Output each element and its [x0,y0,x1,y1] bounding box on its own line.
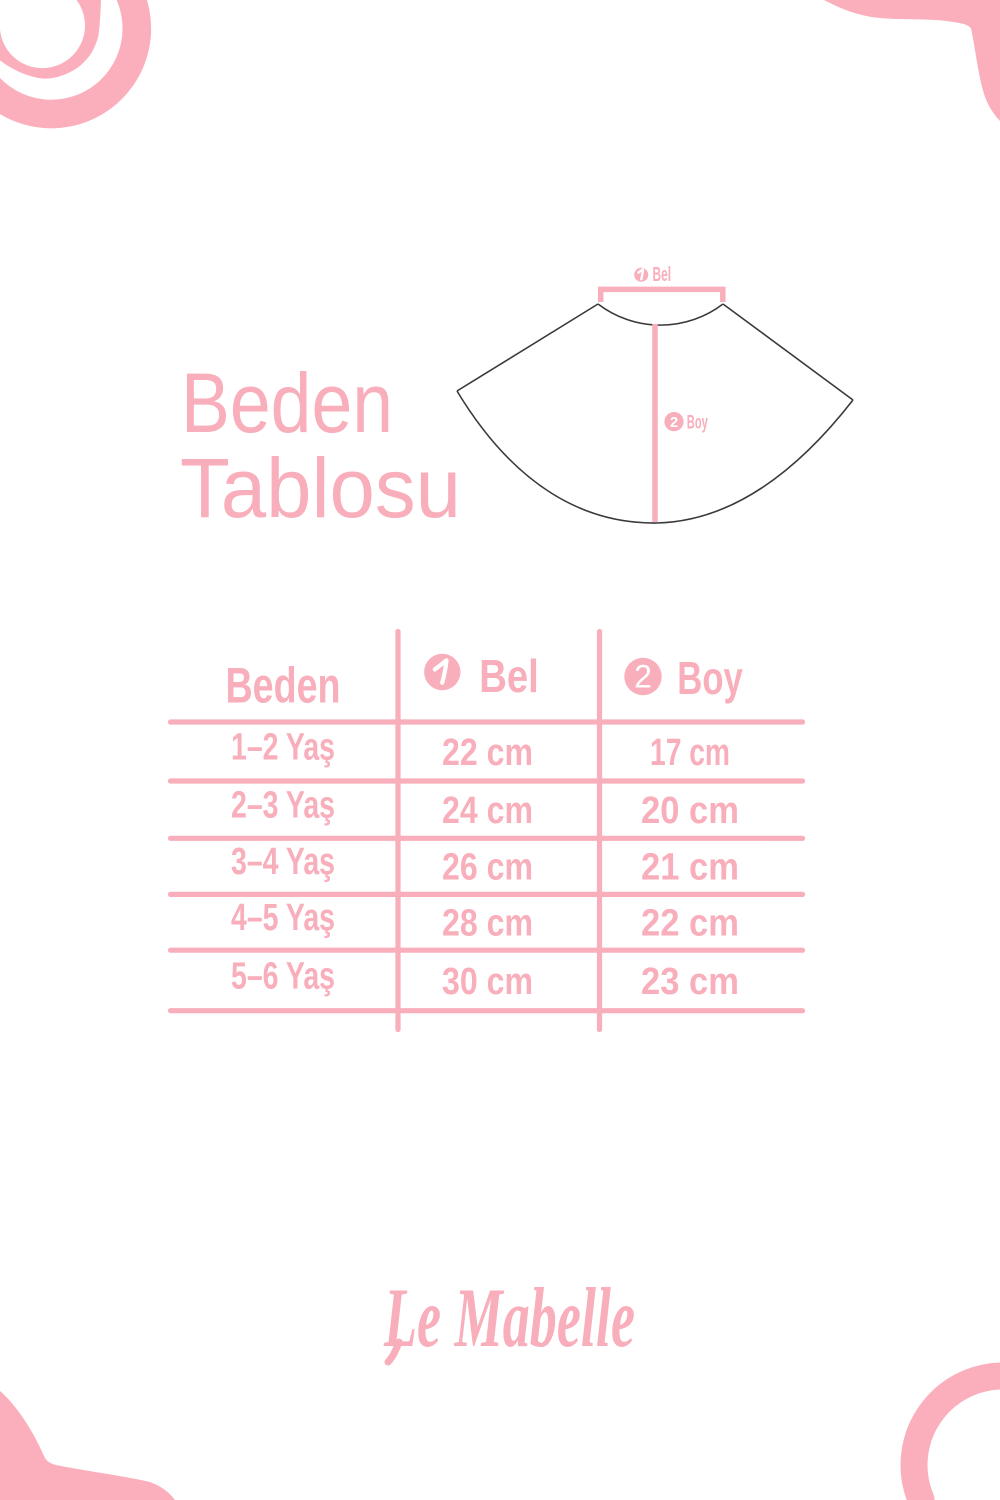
svg-text:4–5 Yaş: 4–5 Yaş [231,897,335,939]
svg-text:2: 2 [634,659,652,695]
svg-text:5–6 Yaş: 5–6 Yaş [231,956,335,998]
svg-text:Bel: Bel [653,264,672,286]
svg-text:22 cm: 22 cm [442,732,533,774]
svg-text:Le Mabelle: Le Mabelle [383,1271,635,1365]
svg-text:20 cm: 20 cm [641,790,739,832]
svg-text:21 cm: 21 cm [641,847,739,889]
svg-text:17 cm: 17 cm [650,732,730,774]
svg-text:Beden: Beden [181,356,393,450]
svg-text:Boy: Boy [687,412,708,433]
svg-text:30 cm: 30 cm [442,961,533,1003]
svg-text:23 cm: 23 cm [641,961,739,1003]
svg-text:2–3 Yaş: 2–3 Yaş [231,785,335,827]
svg-text:24 cm: 24 cm [442,790,533,832]
svg-text:26 cm: 26 cm [442,847,533,889]
svg-text:Bel: Bel [479,650,539,702]
svg-text:Tablosu: Tablosu [180,441,461,535]
svg-text:22 cm: 22 cm [641,903,739,945]
svg-text:28 cm: 28 cm [442,903,533,945]
svg-text:3–4 Yaş: 3–4 Yaş [231,841,335,883]
svg-text:1–2 Yaş: 1–2 Yaş [231,727,335,769]
svg-text:Boy: Boy [677,652,743,704]
svg-text:2: 2 [670,414,678,431]
svg-text:Beden: Beden [226,658,341,714]
